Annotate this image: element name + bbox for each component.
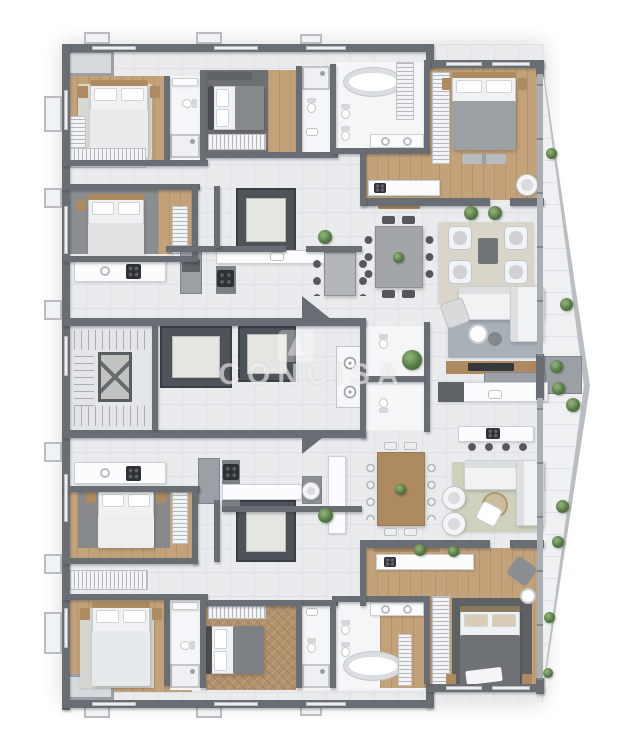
plant: [318, 230, 332, 244]
wall: [424, 600, 430, 684]
watermark-text: CONCISA: [182, 358, 442, 398]
sink: [270, 252, 284, 261]
wall: [200, 600, 206, 688]
pillow: [456, 80, 482, 93]
wall: [214, 500, 220, 562]
bed: [88, 198, 144, 256]
pillow: [214, 629, 227, 648]
ac-unit: [44, 442, 62, 462]
side-table: [520, 588, 536, 604]
centerpiece-plant: [393, 252, 404, 263]
nightstand: [156, 492, 166, 503]
sink: [381, 137, 390, 146]
duvet: [88, 223, 144, 256]
bed-bench: [462, 154, 506, 164]
vanity: [370, 134, 424, 148]
plant: [550, 360, 563, 373]
toilet: [306, 98, 317, 113]
elevator-cab: [246, 198, 286, 242]
headboard: [206, 626, 212, 674]
sink: [306, 128, 318, 136]
duvet: [452, 101, 516, 150]
side-table: [488, 332, 502, 346]
plant: [464, 206, 478, 220]
dining-chairs: [427, 460, 436, 520]
wall: [62, 486, 200, 492]
wardrobe: [398, 634, 412, 686]
plant: [543, 668, 553, 678]
cooktop: [223, 464, 239, 480]
toilet: [182, 98, 197, 109]
wardrobe: [208, 134, 266, 150]
plant: [556, 500, 569, 513]
sink: [306, 608, 318, 616]
sink: [100, 468, 110, 478]
toilet: [306, 638, 317, 653]
wardrobe: [70, 116, 86, 148]
dining-chair: [384, 528, 397, 536]
sink: [381, 605, 390, 614]
wall: [200, 70, 206, 162]
toilet: [180, 640, 195, 651]
wall: [204, 600, 338, 606]
dining-chair: [402, 290, 415, 298]
window: [492, 62, 530, 66]
window: [64, 336, 68, 376]
cooktop: [126, 466, 141, 481]
wall: [360, 148, 366, 206]
dining-chair: [404, 528, 417, 536]
headboard: [88, 194, 144, 200]
duvet: [233, 626, 264, 674]
ac-unit: [44, 554, 62, 574]
headboard: [92, 602, 150, 608]
ac-unit: [44, 96, 62, 132]
dining-chair: [382, 216, 395, 224]
toilet: [340, 126, 351, 141]
wall: [332, 596, 430, 602]
ac-unit: [44, 188, 62, 208]
armchair: [504, 260, 528, 284]
nightstand: [86, 492, 96, 503]
duvet: [92, 631, 150, 686]
window: [214, 46, 258, 50]
plant: [552, 382, 565, 395]
plant: [566, 398, 580, 412]
wall: [222, 506, 362, 512]
toilet: [340, 642, 351, 657]
tv-console: [208, 72, 252, 80]
armchair: [302, 482, 320, 500]
dining-chair: [384, 442, 397, 450]
shower: [170, 134, 200, 158]
dining-chairs: [364, 232, 373, 283]
wall: [152, 326, 158, 430]
pillow: [492, 614, 516, 627]
shower: [170, 664, 200, 688]
window: [446, 62, 482, 66]
shower: [302, 664, 330, 688]
armchair: [442, 512, 466, 536]
window: [64, 206, 68, 254]
shower: [302, 66, 330, 90]
wall: [536, 354, 544, 400]
window: [92, 46, 136, 50]
wall: [360, 548, 366, 606]
elevator-cab: [246, 510, 286, 552]
plant: [560, 298, 573, 311]
bed: [210, 626, 264, 674]
wall: [62, 594, 208, 600]
cooktop: [486, 428, 500, 439]
pillow: [214, 651, 227, 670]
stools: [464, 442, 528, 452]
ac-unit: [300, 34, 322, 44]
toilet: [340, 104, 351, 119]
bed: [90, 84, 148, 158]
wall: [62, 184, 200, 190]
kitchen-counter: [222, 484, 302, 500]
wall: [424, 60, 430, 152]
wall: [330, 64, 336, 154]
bed: [212, 86, 264, 130]
dining-chairs: [366, 460, 375, 520]
wall: [360, 198, 490, 206]
cooktop: [374, 183, 386, 193]
private-elevator: [236, 188, 296, 252]
window: [446, 686, 482, 690]
armchair: [448, 226, 472, 250]
nightstand: [80, 608, 90, 620]
plant: [488, 206, 502, 220]
plant: [544, 612, 555, 623]
nightstand: [78, 86, 88, 98]
wall: [166, 246, 286, 252]
wardrobe: [432, 596, 450, 686]
bathtub: [344, 652, 402, 680]
sink: [403, 605, 412, 614]
vanity: [172, 78, 198, 86]
tv: [468, 363, 514, 371]
bedroom-2-wood: [268, 70, 296, 152]
dining-chair: [402, 216, 415, 224]
cooktop: [126, 264, 141, 279]
wall: [204, 152, 338, 158]
window: [214, 702, 258, 706]
pillow: [92, 202, 115, 215]
window: [306, 46, 346, 50]
nightstand: [150, 86, 160, 98]
stairs: [74, 406, 148, 426]
wall: [330, 600, 336, 688]
wardrobe: [208, 606, 266, 619]
ac-unit: [44, 612, 62, 654]
ac-unit: [84, 32, 110, 44]
vanity: [172, 602, 198, 610]
pillow: [96, 610, 120, 623]
wall: [164, 76, 170, 162]
plant: [448, 546, 459, 557]
ac-unit: [196, 32, 222, 44]
window-wall: [537, 74, 543, 356]
window: [92, 702, 136, 706]
toilet: [378, 334, 389, 349]
wall: [62, 558, 198, 564]
headboard: [208, 86, 214, 130]
headboard: [452, 72, 516, 78]
sink: [488, 390, 502, 399]
toilet: [378, 398, 389, 413]
window: [306, 702, 346, 706]
pillow: [216, 109, 229, 127]
pillow: [102, 494, 125, 507]
headboard: [460, 606, 520, 612]
plant: [414, 544, 426, 556]
wall: [62, 318, 366, 326]
wall: [62, 256, 198, 262]
nightstand: [518, 78, 527, 90]
pillow: [121, 88, 145, 101]
coffee-table: [468, 324, 488, 344]
wall: [306, 246, 362, 252]
toilet: [340, 620, 351, 635]
stairs: [74, 330, 148, 350]
window: [64, 608, 68, 648]
headboard: [90, 80, 148, 86]
wardrobe: [172, 492, 188, 544]
plant: [552, 536, 564, 548]
duvet: [235, 86, 264, 130]
armchair: [504, 226, 528, 250]
bed: [460, 610, 520, 686]
pantry: [328, 456, 346, 534]
armchair: [442, 486, 466, 510]
stair-shaft: [98, 352, 132, 402]
wall: [332, 148, 430, 154]
pillow: [464, 614, 488, 627]
window: [64, 474, 68, 522]
window: [492, 686, 530, 690]
stools: [312, 256, 322, 296]
dining-chairs: [425, 232, 434, 283]
oven-tower: [198, 458, 220, 504]
ac-unit: [44, 300, 62, 320]
sink: [100, 266, 110, 276]
window: [64, 90, 68, 130]
plant: [546, 148, 557, 159]
wall: [192, 486, 198, 564]
dining-chair: [382, 290, 395, 298]
armchair: [516, 174, 538, 196]
sink: [403, 137, 412, 146]
wall: [62, 160, 208, 166]
coffee-table: [478, 238, 498, 264]
wall: [296, 600, 302, 688]
bed: [452, 76, 516, 150]
pillow: [118, 202, 141, 215]
bathtub: [344, 68, 402, 96]
pillow: [94, 88, 118, 101]
nightstand: [442, 78, 451, 90]
wall: [536, 678, 544, 694]
dining-chair: [404, 442, 417, 450]
wardrobe: [396, 62, 414, 120]
nightstand: [76, 200, 86, 211]
wall: [296, 66, 302, 154]
nightstand: [152, 608, 162, 620]
kitchen-counter: [74, 260, 166, 282]
centerpiece-plant: [395, 484, 406, 495]
wall: [214, 186, 220, 248]
pillow: [216, 89, 229, 107]
pillow: [486, 80, 512, 93]
wall: [164, 600, 170, 686]
pillow: [123, 610, 147, 623]
floor-plan: CONCISA: [0, 0, 624, 750]
cooktop: [384, 557, 396, 567]
vanity: [370, 602, 424, 616]
plant: [318, 508, 333, 523]
cooktop: [217, 270, 234, 287]
wardrobe: [70, 570, 148, 590]
bed: [98, 490, 154, 548]
pillow: [128, 494, 151, 507]
bed: [92, 606, 150, 686]
window-wall: [537, 398, 543, 680]
duvet: [98, 515, 154, 548]
breakfast-table: [324, 252, 356, 296]
kitchen-counter: [74, 462, 166, 484]
armchair: [448, 260, 472, 284]
stairs: [74, 352, 94, 406]
